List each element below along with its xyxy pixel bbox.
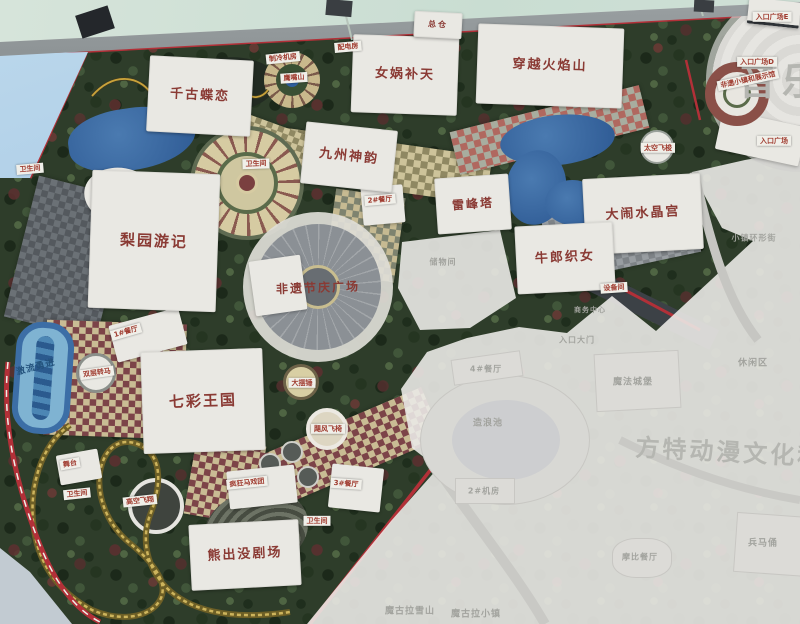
- attraction-block: 千古蝶恋: [146, 55, 254, 136]
- mount-bracket-c: [694, 0, 715, 13]
- faded-park-label: 造浪池: [473, 416, 503, 429]
- attraction-block: 总仓: [413, 11, 462, 39]
- attraction-block: 女娲补天: [351, 34, 460, 116]
- faded-park-label: 魔古拉小镇: [451, 607, 501, 620]
- faded-park-label: 摩比餐厅: [622, 552, 658, 563]
- faded-park-label: 2#机房: [468, 486, 500, 497]
- faded-park-label: 商务中心: [574, 305, 606, 315]
- facility-label: 鹰嘴山: [280, 72, 308, 84]
- facility-label: 3#餐厅: [330, 478, 361, 491]
- faded-park-label: 兵马俑: [748, 536, 778, 549]
- facility-label: 卫生间: [242, 158, 269, 169]
- mount-bracket-b: [325, 0, 352, 17]
- facility-label: 设备间: [600, 282, 628, 294]
- attraction-block: 雷峰塔: [434, 173, 512, 234]
- facility-label: 入口广场D: [737, 57, 777, 67]
- facility-label: 入口广场: [757, 136, 791, 146]
- attraction-block: 熊出没剧场: [188, 519, 301, 591]
- faded-park-label: 4#餐厅: [470, 364, 502, 375]
- facility-label: 飓风飞椅: [311, 424, 345, 434]
- attraction-block: 穿越火焰山: [476, 23, 625, 108]
- faded-park-label: 魔法城堡: [613, 375, 653, 388]
- faded-park-label: 入口大门: [559, 335, 595, 346]
- faded-park-label: 小镇环形街: [732, 233, 777, 244]
- faded-park-label: 储物间: [430, 257, 457, 268]
- facility-label: 入口广场E: [753, 12, 792, 22]
- attraction-block: 九州神韵: [300, 121, 398, 192]
- facility-label: 卫生间: [304, 516, 331, 526]
- faded-park-label: 休闲区: [738, 356, 768, 369]
- park-map-photo: 非遗节庆广场 千古蝶恋女娲补天穿越火焰山总仓九州神韵雷峰塔大闹水晶宫牛郎织女梨园…: [0, 0, 800, 624]
- facility-label: 太空飞梭: [641, 143, 675, 153]
- faded-park-label: 魔古拉雪山: [385, 604, 435, 617]
- attraction-block: 七彩王国: [140, 348, 265, 454]
- facility-label: 大摆锤: [289, 378, 316, 388]
- heritage-plaza-label: 非遗节庆广场: [273, 278, 364, 298]
- faded-wave-pool-inner: [452, 400, 560, 480]
- attraction-block: 梨园游记: [88, 170, 221, 312]
